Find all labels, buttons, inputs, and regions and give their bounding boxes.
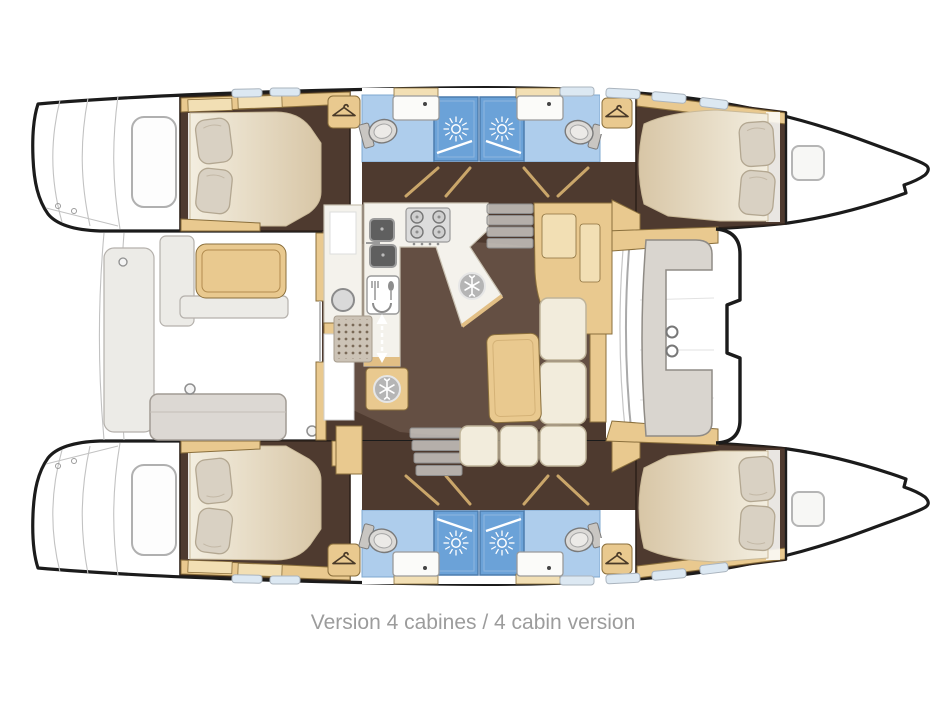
cutlery-icon [367, 276, 399, 314]
bridgedeck [100, 203, 741, 476]
cabinet [336, 426, 362, 474]
aft-cockpit [100, 233, 318, 440]
salon-table [486, 333, 541, 423]
bow-hatch [792, 146, 824, 180]
snowflake-fridge-icon [366, 368, 408, 410]
pillow [195, 167, 233, 214]
forward-bench [642, 240, 712, 436]
washbasin [517, 96, 563, 120]
foredeck-edge [716, 229, 740, 443]
stove-burners-icon [406, 208, 450, 245]
pillow [194, 117, 233, 165]
cup-holder [667, 346, 678, 357]
pillow [739, 121, 776, 167]
transom-window [132, 117, 176, 207]
wardrobe [328, 96, 360, 128]
wardrobe [602, 98, 632, 128]
cockpit-seat-cushion [150, 394, 286, 440]
forward-cockpit [640, 240, 714, 436]
entry-mat [334, 316, 372, 362]
cockpit-bench [104, 248, 154, 432]
cleat [119, 258, 127, 266]
salon-wall [590, 334, 606, 422]
snowflake-fridge-icon [459, 273, 485, 299]
catamaran-plan-svg: Version 4 cabines / 4 cabin version [0, 0, 950, 712]
bathrooms [359, 88, 636, 162]
washbasin [393, 96, 439, 120]
cup-holder [667, 327, 678, 338]
pillow [738, 170, 776, 217]
winch [185, 384, 195, 394]
caption: Version 4 cabines / 4 cabin version [311, 611, 636, 634]
cockpit-table [196, 244, 286, 298]
floor-plan: Version 4 cabines / 4 cabin version [0, 0, 950, 712]
cockpit-bench [180, 296, 288, 318]
round-sink [332, 289, 354, 311]
